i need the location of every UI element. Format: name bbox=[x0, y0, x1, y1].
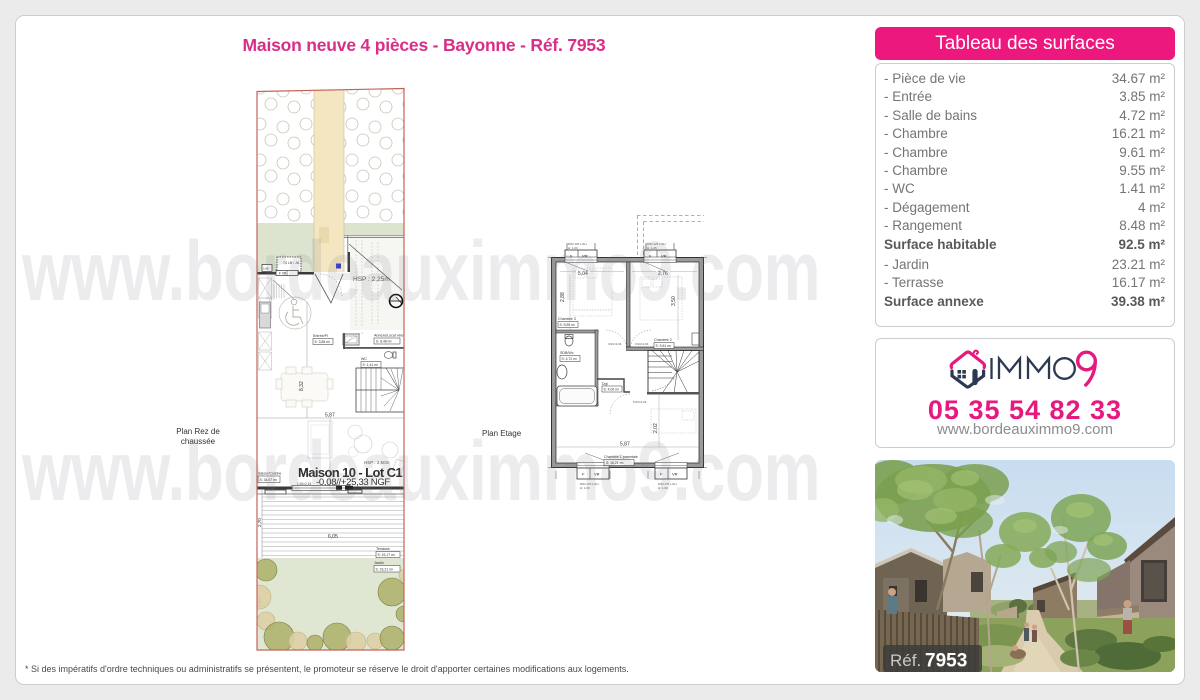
svg-text:7953: 7953 bbox=[925, 651, 967, 672]
svg-text:Jardin: Jardin bbox=[374, 561, 384, 565]
svg-text:Terrasse: Terrasse bbox=[376, 547, 390, 551]
svg-text:Annexe/Local vélo: Annexe/Local vélo bbox=[374, 334, 403, 338]
svg-text:S: 8,48 m²: S: 8,48 m² bbox=[376, 340, 393, 344]
svg-text:S: 9,55 m²: S: 9,55 m² bbox=[560, 323, 577, 327]
svg-text:S: 9,61 m²: S: 9,61 m² bbox=[656, 344, 673, 348]
svg-text:Entrée/Pl: Entrée/Pl bbox=[313, 334, 328, 338]
svg-text:Dgt: Dgt bbox=[602, 382, 608, 386]
svg-text:Chambre 2: Chambre 2 bbox=[654, 338, 672, 342]
svg-text:S: 4,72 m²: S: 4,72 m² bbox=[562, 357, 579, 361]
svg-text:0,93×2,04: 0,93×2,04 bbox=[635, 342, 649, 346]
svg-text:0,93×2,04: 0,93×2,04 bbox=[608, 342, 622, 346]
svg-text:S: 3,85 m²: S: 3,85 m² bbox=[315, 340, 332, 344]
svg-text:SDB/Wc: SDB/Wc bbox=[560, 351, 574, 355]
svg-text:S: 16,17 m²: S: 16,17 m² bbox=[378, 553, 396, 557]
svg-text:S: 4,00 m²: S: 4,00 m² bbox=[604, 388, 621, 392]
svg-text:5,87: 5,87 bbox=[325, 413, 335, 419]
svg-text:WC: WC bbox=[361, 357, 367, 361]
svg-text:S: 23,21 m²: S: 23,21 m² bbox=[376, 568, 394, 572]
svg-text:Réf.: Réf. bbox=[890, 651, 921, 670]
svg-text:S: 1,41 m²: S: 1,41 m² bbox=[363, 363, 380, 367]
svg-text:8,32: 8,32 bbox=[299, 381, 305, 391]
svg-text:6,05: 6,05 bbox=[328, 534, 338, 540]
svg-text:5,03×2,04: 5,03×2,04 bbox=[633, 400, 647, 404]
